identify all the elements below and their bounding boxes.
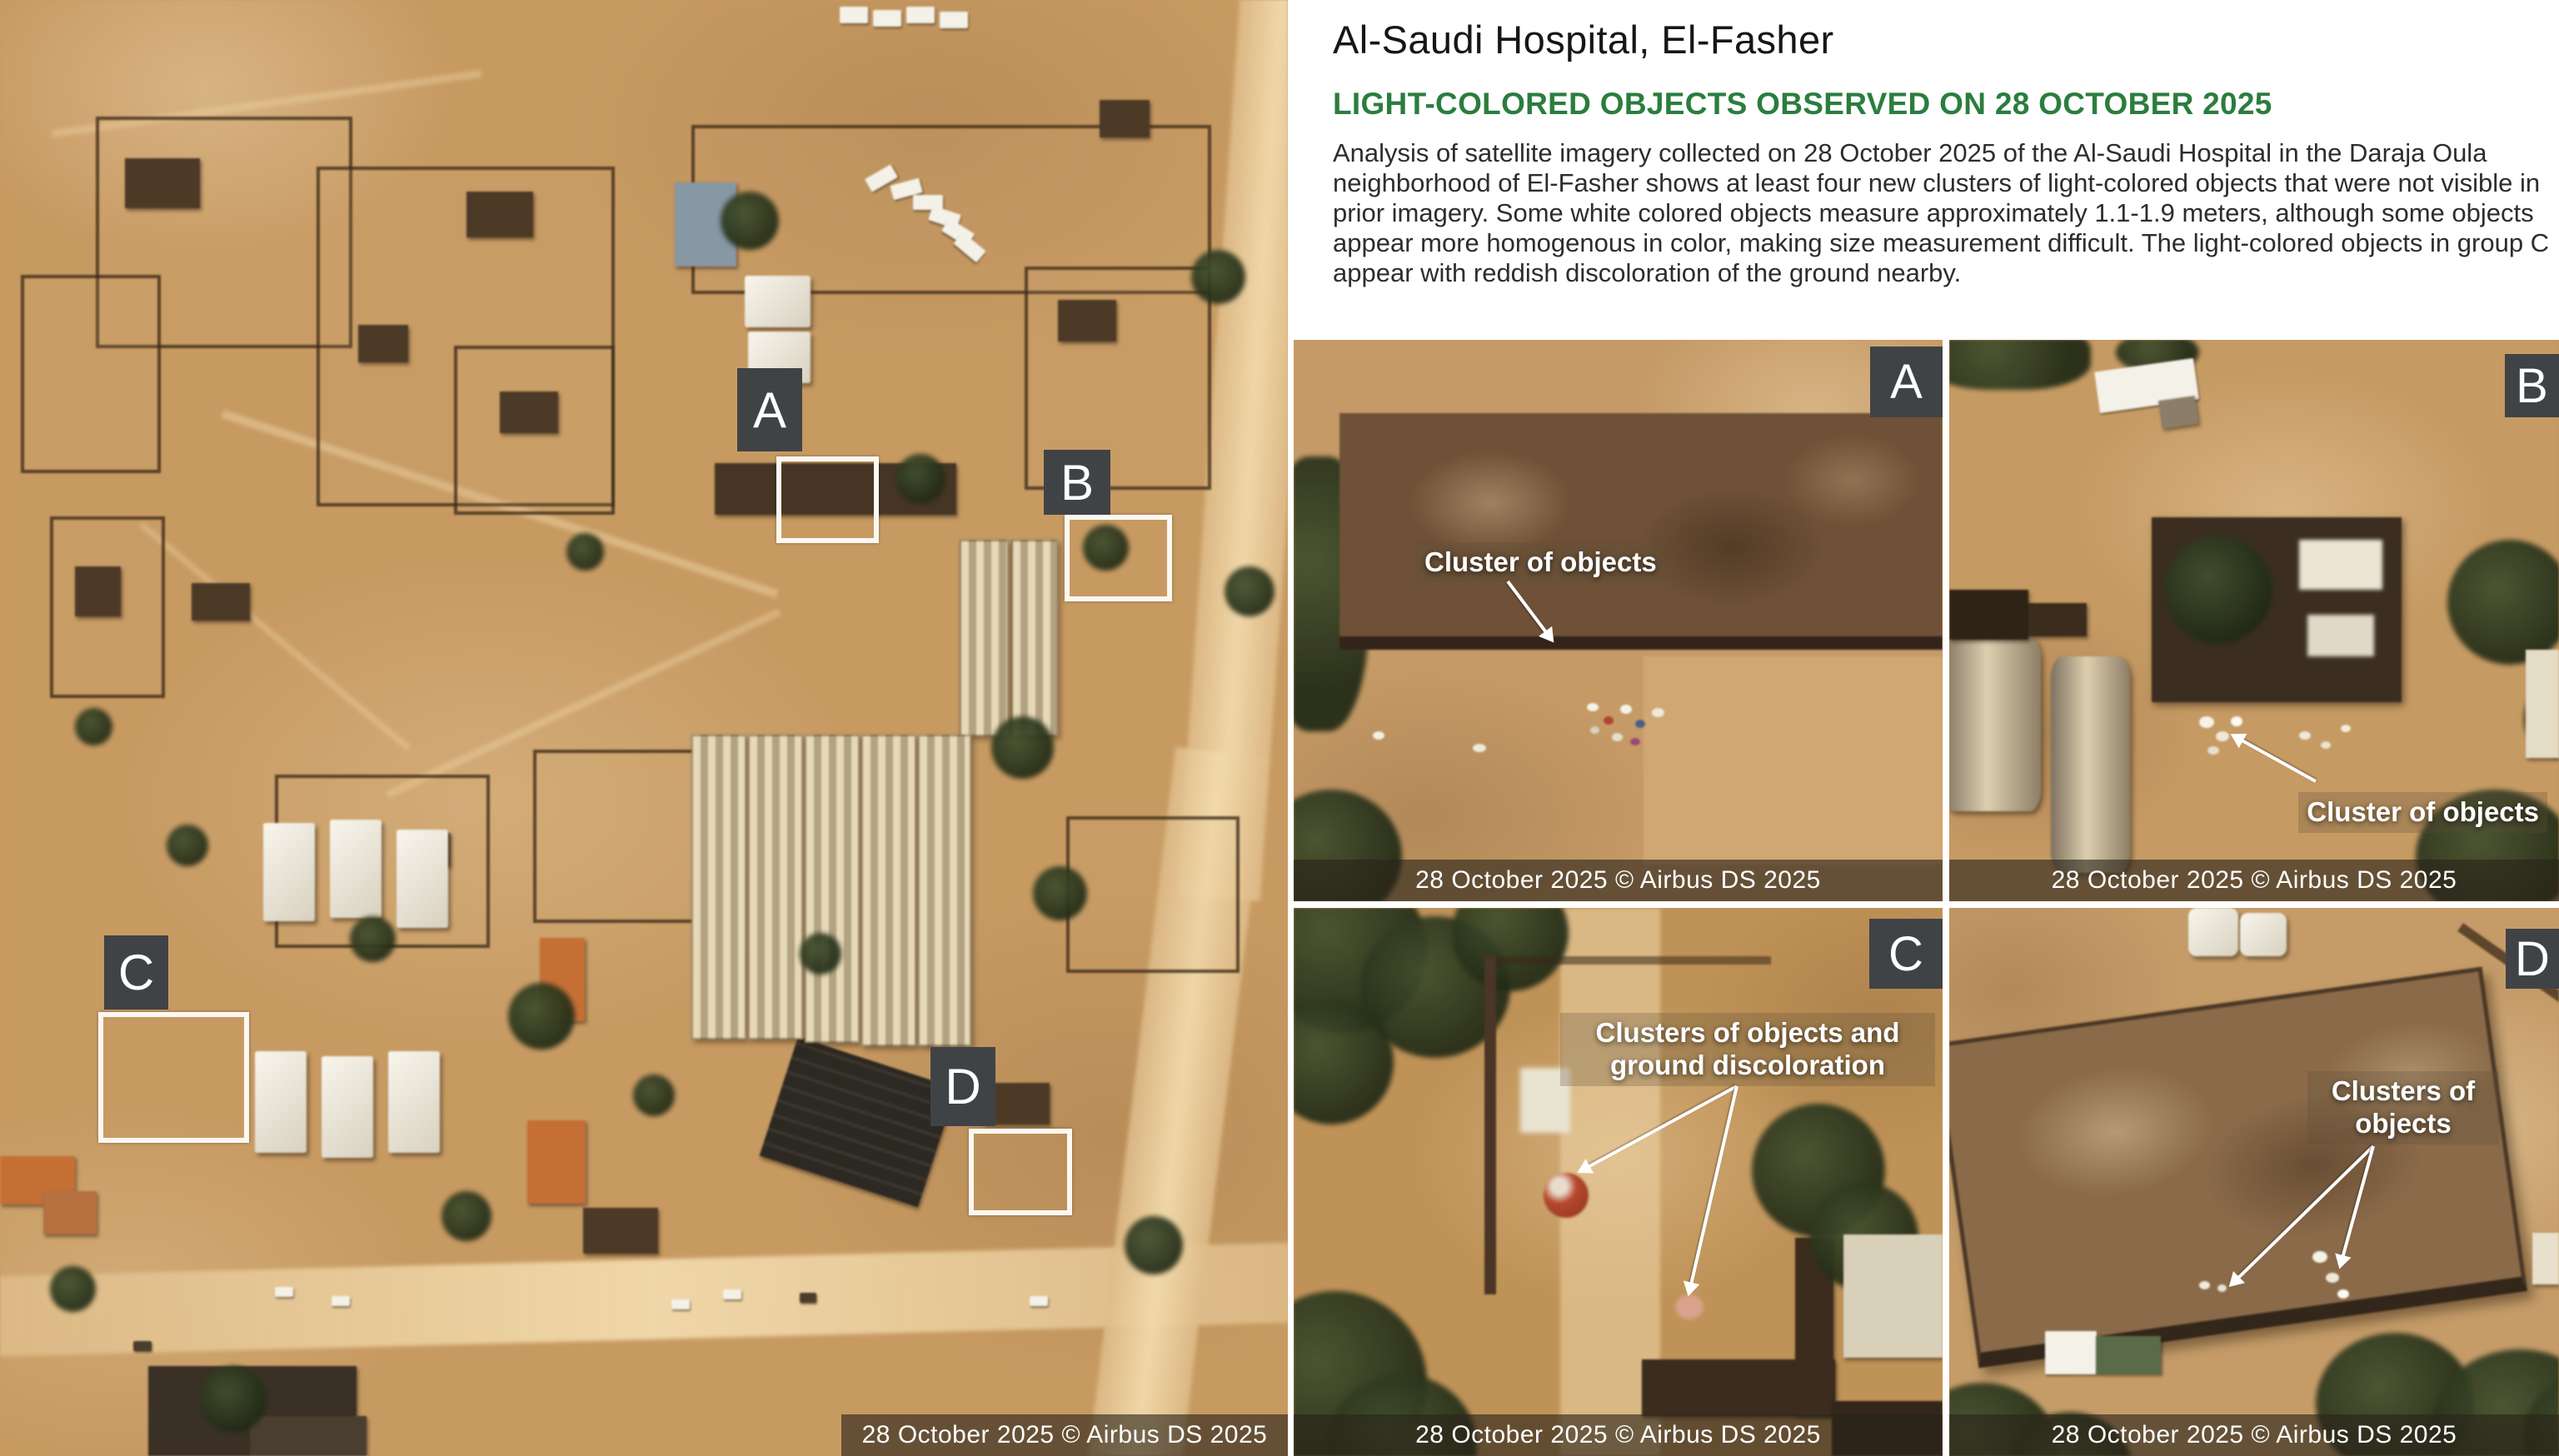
cylindrical-tank [2051,656,2130,873]
marker-c-box [98,1012,249,1143]
marker-d-label: D [930,1047,995,1126]
marker-c-label: C [104,935,168,1010]
attribution-bar: 28 October 2025 © Airbus DS 2025 [1294,1414,1943,1456]
satellite-analysis-graphic: A B C D 28 October 2025 © Airbus DS 2025… [0,0,2559,1456]
marker-a-label: A [737,368,802,451]
marker-b-box [1065,515,1172,601]
panel-a: A Cluster of objects 28 October 2025 © A… [1294,340,1943,901]
panel-d-letter: D [2506,929,2559,989]
panel-a-imagery [1294,340,1943,901]
cylindrical-tank [1949,636,2041,811]
panel-c-letter: C [1869,919,1943,989]
truck [2045,1331,2097,1374]
panel-b-letter: B [2505,354,2559,417]
satellite-terrain [0,0,1288,1456]
attribution-bar: 28 October 2025 © Airbus DS 2025 [841,1414,1288,1456]
main-satellite-image: A B C D 28 October 2025 © Airbus DS 2025 [0,0,1288,1456]
marker-b-label: B [1044,450,1110,515]
water-tanks [2188,908,2238,956]
analysis-paragraph: Analysis of satellite imagery collected … [1333,138,2551,288]
report-header: Al-Saudi Hospital, El-Fasher LIGHT-COLOR… [1294,0,2559,333]
attribution-bar: 28 October 2025 © Airbus DS 2025 [1949,860,2559,901]
attribution-bar: 28 October 2025 © Airbus DS 2025 [1949,1414,2559,1456]
panel-d: D Clusters of objects 28 October 2025 © … [1949,908,2559,1456]
panel-d-imagery [1949,908,2559,1456]
marker-a-box [776,456,879,543]
panel-a-letter: A [1870,347,1943,417]
building-roof [1339,413,1943,650]
attribution-bar: 28 October 2025 © Airbus DS 2025 [1294,860,1943,901]
panel-d-annotation: Clusters of objects [2307,1071,2499,1144]
panel-c: C Clusters of objects and ground discolo… [1294,908,1943,1456]
page-subtitle: LIGHT-COLORED OBJECTS OBSERVED ON 28 OCT… [1333,87,2272,122]
marker-d-box [969,1129,1072,1215]
panel-c-imagery [1294,908,1943,1456]
panel-b: B Cluster of objects 28 October 2025 © A… [1949,340,2559,901]
panel-b-annotation: Cluster of objects [2298,792,2547,833]
page-title: Al-Saudi Hospital, El-Fasher [1333,17,1834,62]
panel-c-annotation: Clusters of objects and ground discolora… [1560,1013,1935,1086]
compound-wall [1484,956,1496,1294]
panel-a-annotation: Cluster of objects [1416,542,1665,583]
